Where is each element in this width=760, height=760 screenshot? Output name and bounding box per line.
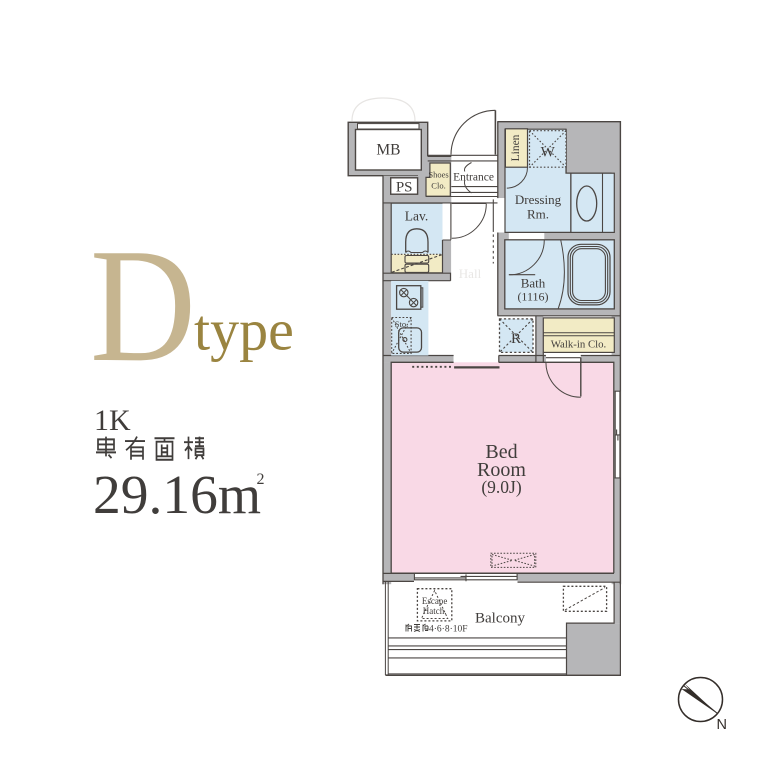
svg-text:Bath: Bath — [521, 276, 546, 291]
svg-text:2: 2 — [257, 471, 265, 488]
svg-text:4·6·8·10F: 4·6·8·10F — [429, 625, 468, 635]
svg-text:Escape: Escape — [422, 596, 447, 606]
svg-text:N: N — [717, 717, 727, 733]
svg-text:Entrance: Entrance — [453, 172, 494, 184]
svg-text:Shoes: Shoes — [428, 170, 448, 180]
svg-text:Hatch.: Hatch. — [423, 606, 447, 616]
svg-text:Dressing: Dressing — [515, 192, 562, 207]
svg-text:Lav.: Lav. — [405, 209, 429, 224]
svg-text:MB: MB — [376, 142, 400, 159]
svg-text:29.16m: 29.16m — [93, 465, 261, 526]
svg-text:Linen: Linen — [510, 134, 522, 161]
svg-text:type: type — [194, 298, 294, 363]
svg-text:R: R — [511, 331, 521, 347]
svg-text:(1116): (1116) — [517, 290, 548, 304]
svg-text:Clo.: Clo. — [431, 181, 445, 191]
svg-text:D: D — [90, 216, 196, 396]
svg-text:Hall: Hall — [459, 266, 482, 281]
svg-text:Balcony: Balcony — [475, 611, 525, 627]
svg-text:PS: PS — [396, 179, 413, 195]
svg-text:1K: 1K — [94, 404, 131, 437]
svg-text:(9.0J): (9.0J) — [481, 477, 522, 497]
svg-text:W: W — [541, 145, 556, 161]
svg-text:Rm.: Rm. — [527, 207, 549, 222]
svg-text:Walk-in Clo.: Walk-in Clo. — [551, 339, 607, 351]
